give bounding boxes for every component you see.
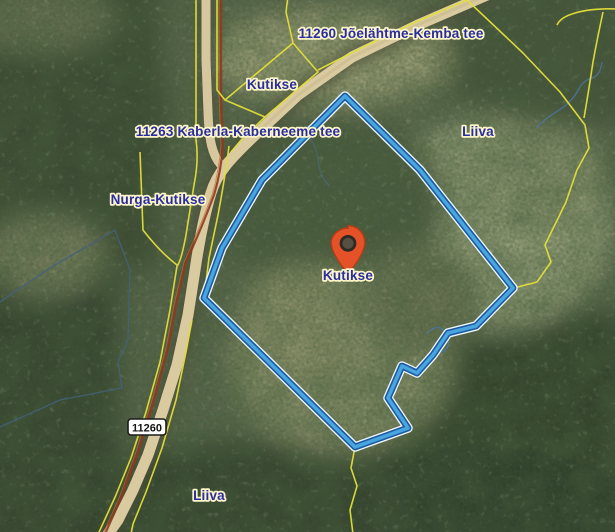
label-nurga-kutikse: Nurga-Kutikse <box>111 192 206 207</box>
label-kutikse-north: Kutikse <box>247 77 297 92</box>
marker-pin-hole <box>341 236 355 250</box>
label-marker-kutikse: Kutikse <box>323 268 373 283</box>
map-viewport[interactable]: 11260 Jõelähtme-Kemba tee Kutikse 11263 … <box>0 0 615 532</box>
road-shield-11260: 11260 <box>128 419 166 435</box>
label-road-joelahtme-kemba: 11260 Jõelähtme-Kemba tee <box>298 26 483 41</box>
map-canvas[interactable]: 11260 Jõelähtme-Kemba tee Kutikse 11263 … <box>0 0 615 532</box>
label-liiva-south: Liiva <box>193 488 225 503</box>
road-shield-number: 11260 <box>132 423 162 435</box>
label-road-kaberla-kaberneeme: 11263 Kaberla-Kaberneeme tee <box>136 124 341 139</box>
label-liiva-east: Liiva <box>462 124 494 139</box>
